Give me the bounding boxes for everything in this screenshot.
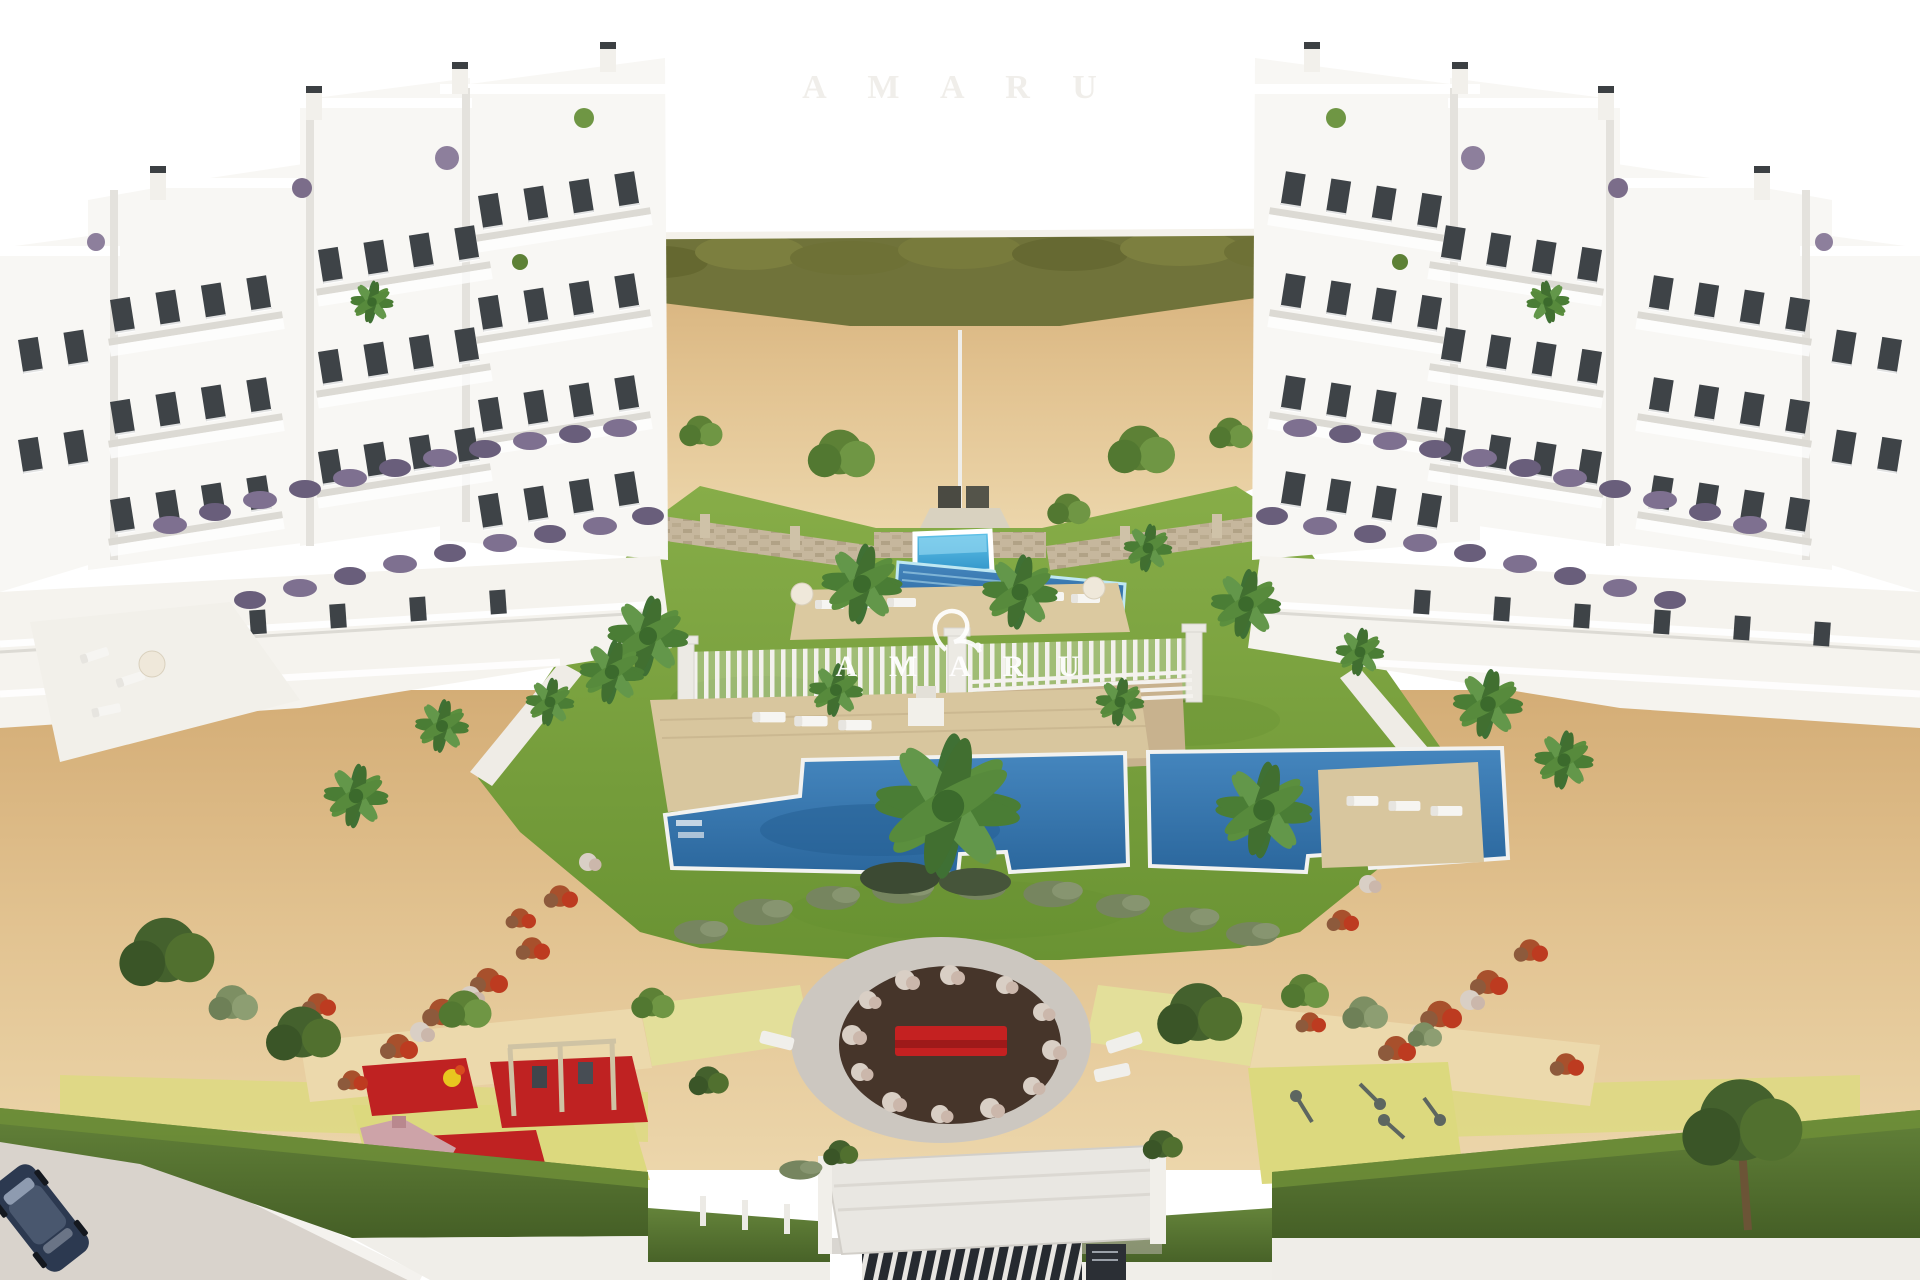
intercom-pillar — [1086, 1244, 1126, 1280]
deck-table — [916, 686, 936, 698]
sand-hill — [612, 230, 1312, 532]
watermark-top-text: A M A R U — [802, 69, 1114, 106]
slide-ladder — [392, 1116, 406, 1128]
roof-bougainvillea — [292, 178, 312, 198]
sidewalk-right — [1272, 1238, 1920, 1280]
deck-table — [908, 698, 944, 726]
parasol — [1083, 577, 1105, 599]
roof-bougainvillea — [435, 146, 459, 170]
kids-pool-shallow — [919, 535, 987, 555]
circular-plaza — [791, 937, 1091, 1143]
pool-steps — [676, 820, 702, 826]
roof-plant — [574, 108, 594, 128]
render-canvas: A M A R U A M A R U — [0, 0, 1920, 1280]
pool-steps — [678, 832, 704, 838]
hill-crest-path — [622, 232, 1298, 236]
watermark-text: A M A R U — [835, 650, 1092, 683]
architectural-render-image: A M A R U A M A R U — [0, 0, 1920, 1280]
parasol — [139, 651, 165, 677]
gatehouse-roof — [826, 1146, 1164, 1254]
roof-plant — [512, 254, 528, 270]
parasol — [791, 583, 813, 605]
roof-bougainvillea — [87, 233, 105, 251]
